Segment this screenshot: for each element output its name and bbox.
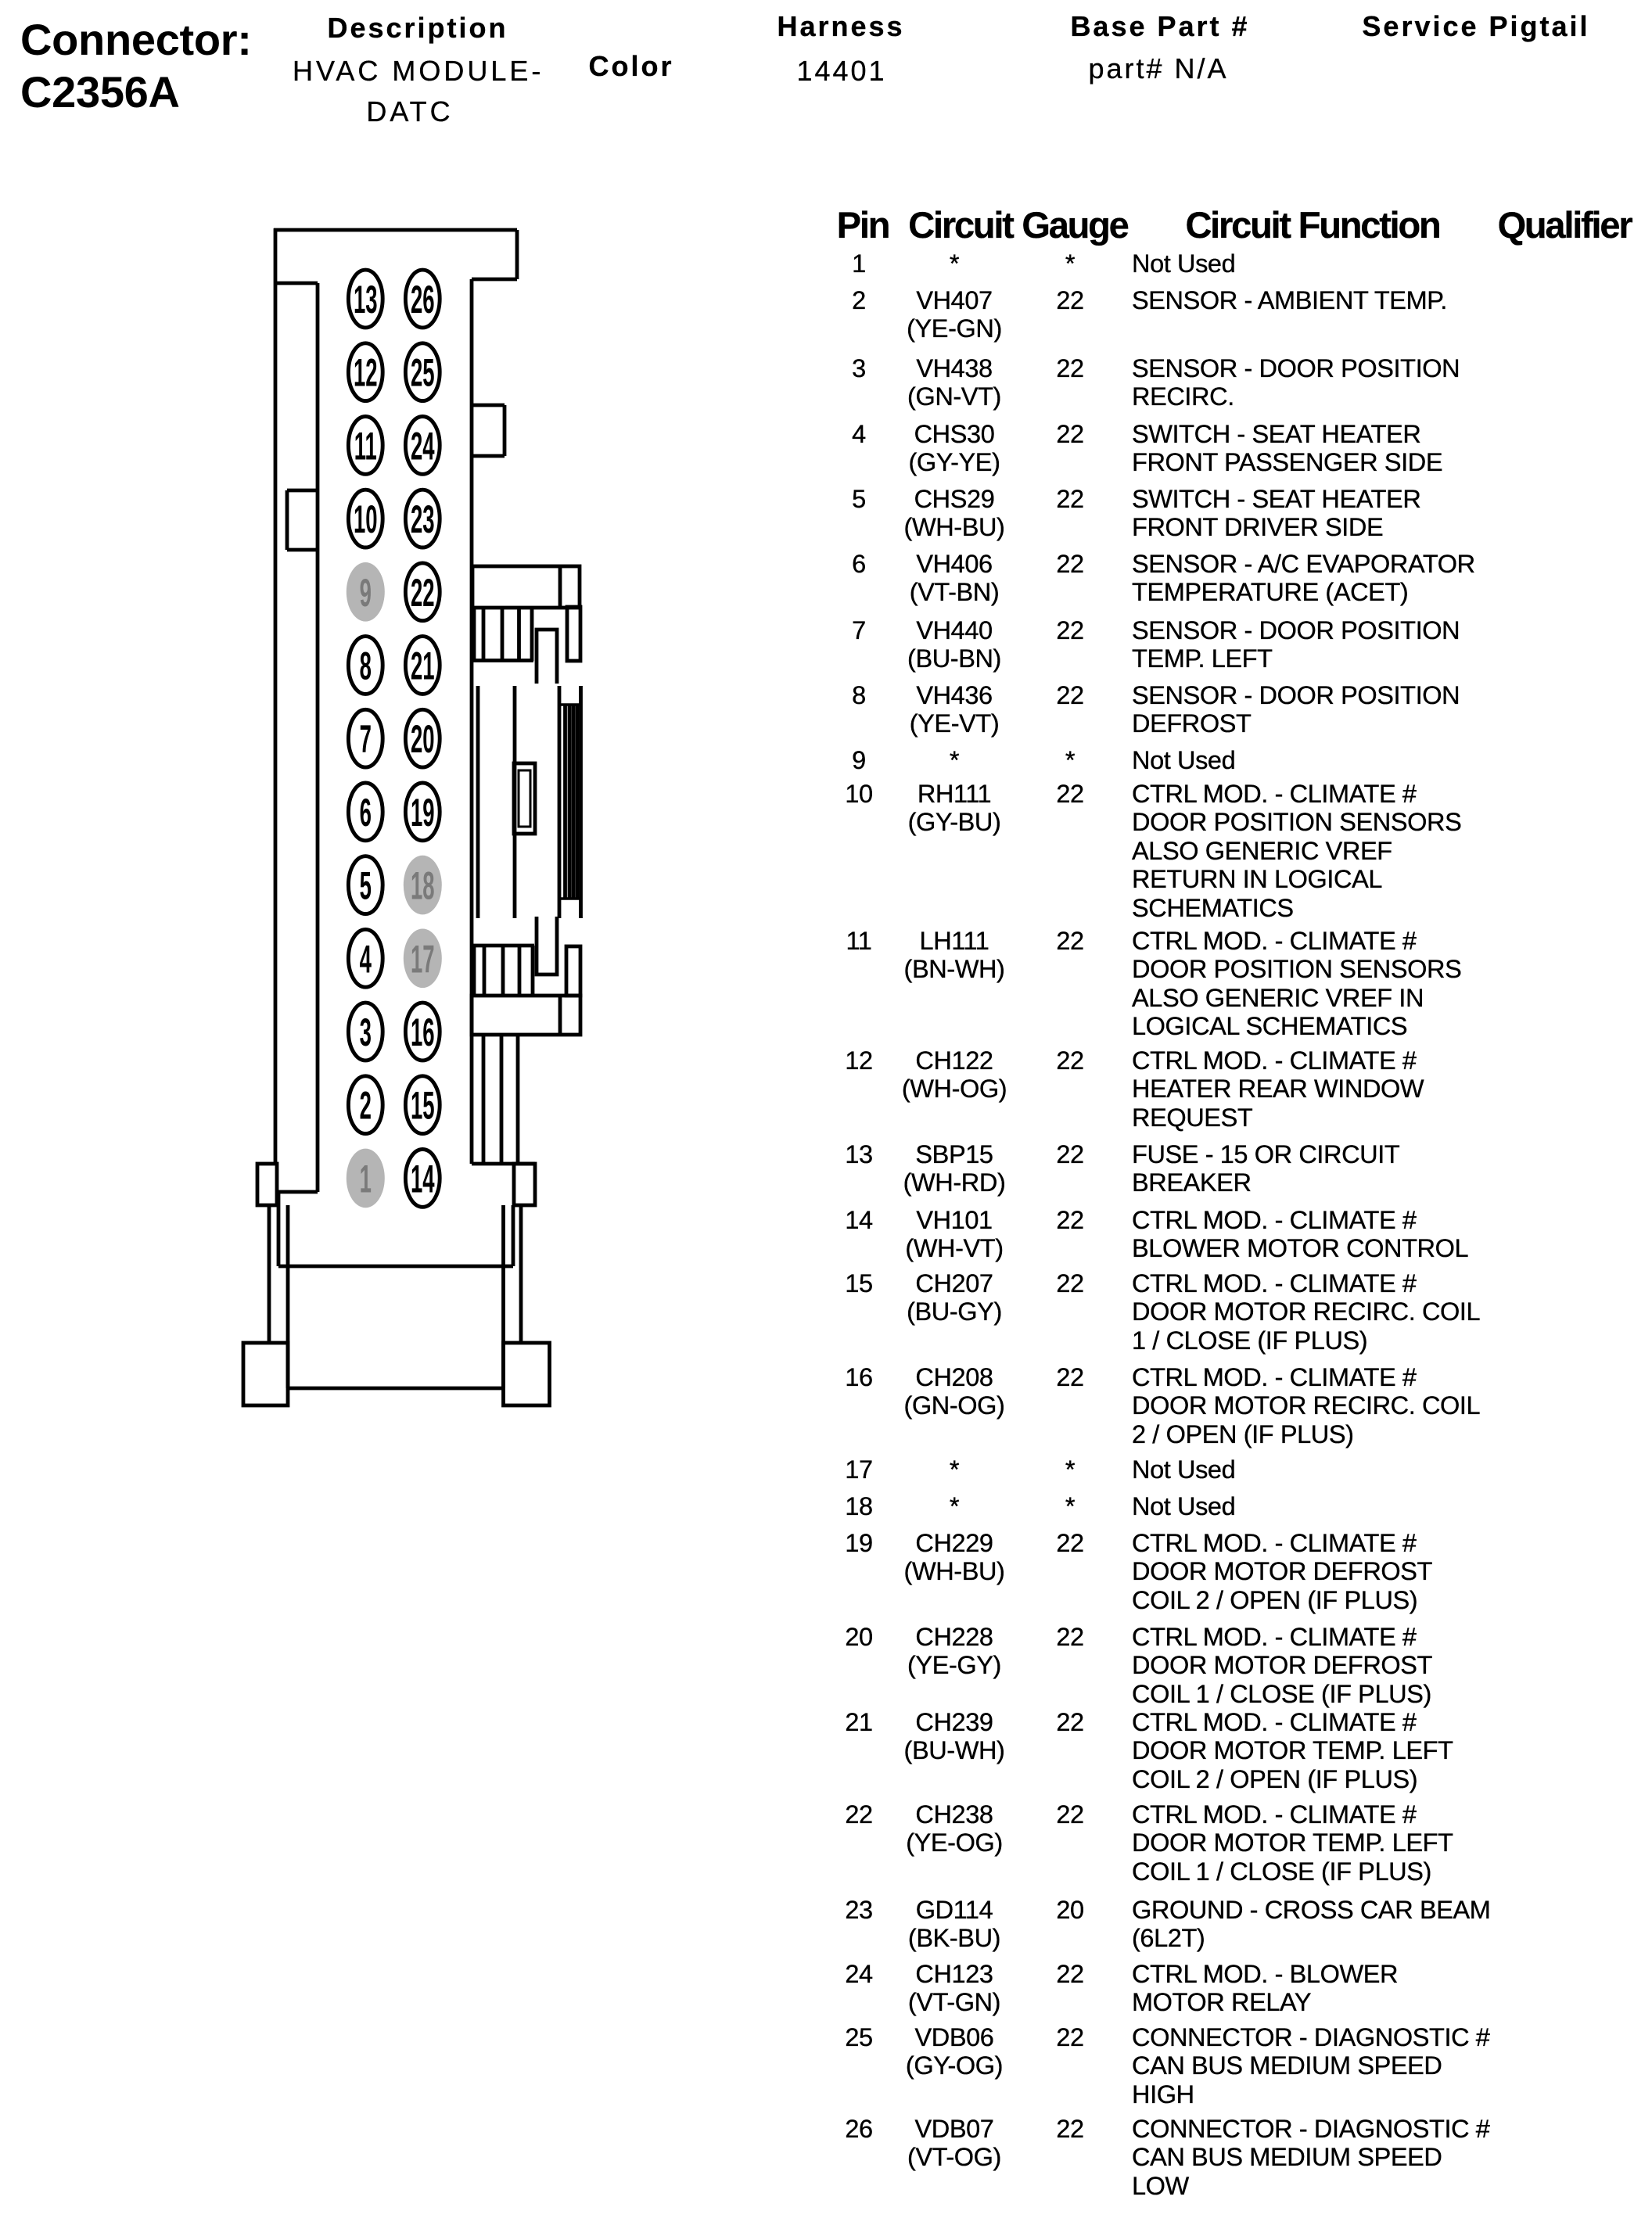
svg-text:10: 10: [354, 497, 378, 541]
svg-text:24: 24: [411, 424, 435, 468]
svg-text:4: 4: [360, 936, 372, 981]
svg-text:1: 1: [360, 1157, 372, 1201]
svg-text:15: 15: [411, 1083, 435, 1128]
svg-text:21: 21: [411, 644, 435, 688]
svg-text:26: 26: [411, 277, 435, 321]
svg-text:25: 25: [411, 350, 435, 395]
svg-text:7: 7: [360, 716, 372, 761]
svg-text:6: 6: [360, 790, 372, 834]
svg-text:22: 22: [411, 570, 435, 615]
svg-text:20: 20: [411, 716, 435, 761]
svg-text:16: 16: [411, 1010, 435, 1054]
svg-text:14: 14: [411, 1157, 435, 1201]
svg-text:8: 8: [360, 644, 372, 688]
svg-text:13: 13: [354, 277, 378, 321]
svg-text:3: 3: [360, 1010, 372, 1054]
svg-text:18: 18: [411, 863, 435, 908]
svg-text:17: 17: [411, 936, 435, 981]
svg-text:19: 19: [411, 790, 435, 834]
svg-text:9: 9: [360, 570, 372, 615]
svg-text:11: 11: [354, 424, 377, 468]
svg-text:5: 5: [360, 863, 372, 908]
svg-text:2: 2: [360, 1083, 372, 1128]
svg-text:23: 23: [411, 497, 435, 541]
svg-text:12: 12: [354, 350, 378, 395]
